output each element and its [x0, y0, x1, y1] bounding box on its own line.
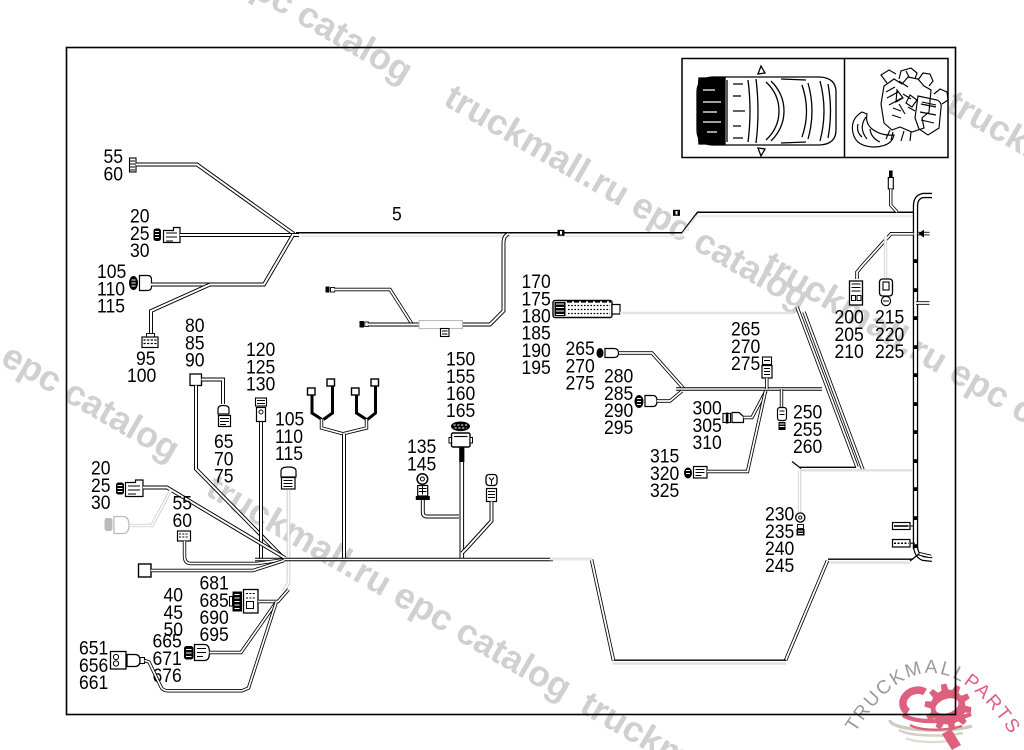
- svg-text:115: 115: [275, 442, 303, 464]
- svg-text:325: 325: [650, 479, 679, 501]
- svg-text:90: 90: [185, 349, 205, 371]
- svg-text:115: 115: [97, 295, 125, 317]
- svg-text:60: 60: [173, 509, 193, 531]
- svg-text:5: 5: [392, 203, 402, 225]
- svg-text:310: 310: [693, 431, 722, 453]
- svg-text:260: 260: [793, 435, 822, 457]
- svg-text:30: 30: [130, 239, 150, 261]
- svg-text:75: 75: [214, 465, 234, 487]
- svg-text:275: 275: [731, 352, 760, 374]
- svg-text:145: 145: [407, 452, 436, 474]
- svg-text:295: 295: [604, 416, 633, 438]
- svg-text:165: 165: [446, 399, 475, 421]
- svg-text:100: 100: [127, 364, 156, 386]
- svg-text:245: 245: [765, 554, 794, 576]
- svg-text:195: 195: [522, 356, 551, 378]
- svg-text:661: 661: [79, 671, 108, 693]
- svg-text:695: 695: [200, 623, 229, 645]
- svg-text:210: 210: [835, 340, 864, 362]
- svg-text:60: 60: [104, 162, 124, 184]
- svg-text:275: 275: [566, 372, 595, 394]
- svg-text:30: 30: [91, 491, 111, 513]
- svg-text:130: 130: [246, 373, 275, 395]
- svg-text:225: 225: [875, 340, 904, 362]
